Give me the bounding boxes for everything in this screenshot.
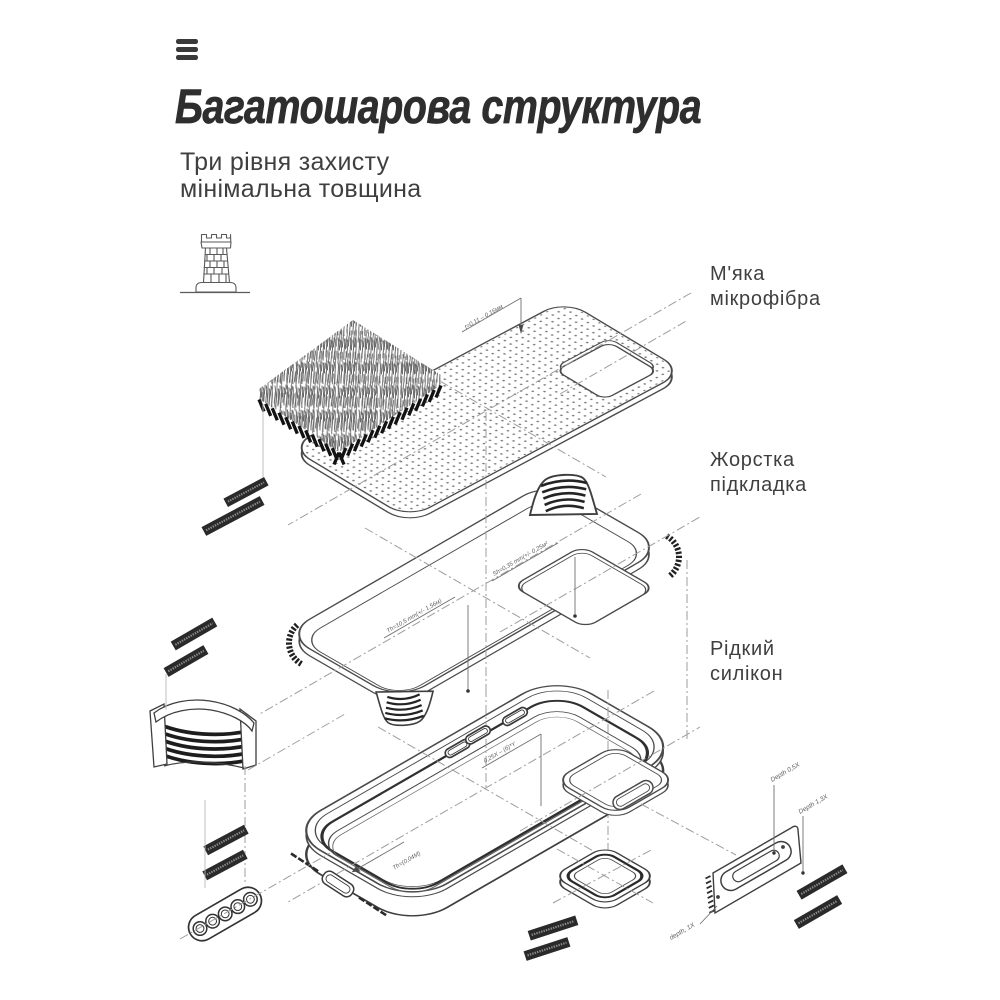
svg-text:depth, 1X: depth, 1X (669, 921, 697, 941)
svg-text:Depth 0,5X: Depth 0,5X (770, 761, 802, 784)
svg-text:Depth 1,3X: Depth 1,3X (798, 793, 830, 816)
svg-text:t=0,11 – 0,16мм: t=0,11 – 0,16мм (464, 304, 504, 331)
